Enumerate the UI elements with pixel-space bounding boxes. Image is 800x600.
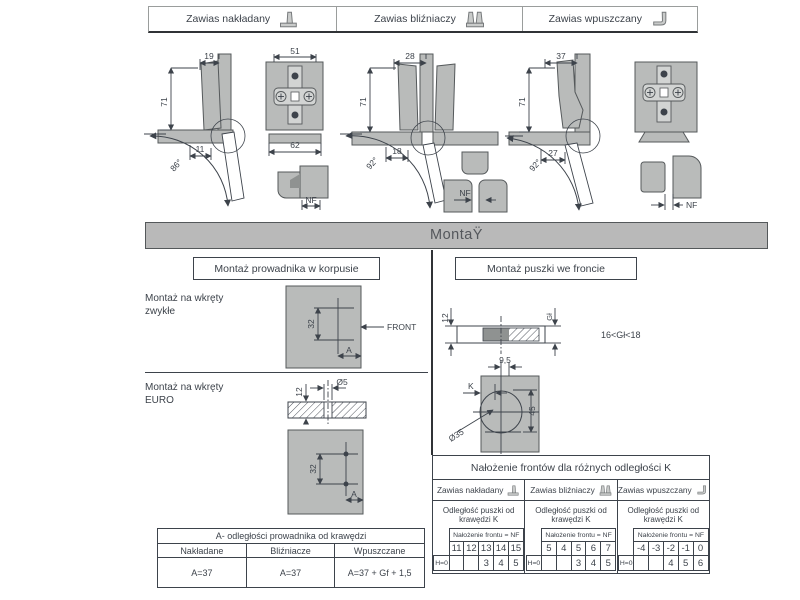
- nf-values-grid: Nałożenie frontu = NF 11 12 13 14 15 H=0…: [433, 528, 523, 571]
- k-cell: 12: [464, 542, 479, 556]
- angle-label: 92°: [364, 155, 380, 171]
- k-cell: 7: [601, 542, 616, 556]
- dim-12: 12: [440, 313, 450, 323]
- hinge-arm-left: [398, 64, 418, 130]
- cabinet-panel-right: [433, 132, 498, 145]
- nf-cell: 4: [494, 556, 509, 571]
- nf-label: NF: [686, 200, 697, 210]
- twin-hinge-diagram: 92° 28 71 18 NF: [338, 48, 513, 218]
- dim-62: 62: [290, 140, 300, 150]
- detail-right-door: [479, 180, 507, 212]
- dim-12: 12: [294, 387, 304, 397]
- detail-panel: [300, 166, 328, 198]
- tab-label: Zawias nakładany: [186, 13, 270, 25]
- detail-door: [641, 162, 665, 192]
- dim-32: 32: [308, 464, 318, 474]
- dim-diameter-35: Ø35: [447, 426, 466, 443]
- overlay-hinge-icon: [507, 485, 520, 496]
- opening-arc: [150, 136, 228, 206]
- k-cell: -2: [663, 542, 678, 556]
- col-header: Bliźniacze: [247, 544, 336, 558]
- overlay-hinge-diagram: 86° 19 71 11 51 62 NF: [138, 48, 333, 218]
- depth-range: 16<Gł<18: [601, 330, 641, 340]
- k-cell: -3: [649, 542, 664, 556]
- nf-cell: 6: [693, 556, 708, 571]
- k-cell: -1: [678, 542, 693, 556]
- k-cell: 6: [586, 542, 601, 556]
- dim-45: 45: [527, 406, 537, 416]
- tab-zawias-wpuszczany: Zawias wpuszczany: [523, 7, 697, 31]
- distance-subtitle: Odległość puszki od krawędzi K: [433, 501, 524, 528]
- column-overlay: Zawias nakładany Odległość puszki od kra…: [433, 480, 525, 573]
- panel-face: [288, 430, 363, 514]
- dim-37: 37: [556, 51, 566, 61]
- nf-cell: 4: [586, 556, 601, 571]
- nf-cell: [649, 556, 664, 571]
- front-overlay-table: Nałożenie frontów dla różnych odległości…: [432, 455, 710, 574]
- nf-cell: 5: [508, 556, 523, 571]
- nf-header: Nałożenie frontu = NF: [541, 529, 615, 542]
- value-cell: A=37 + Gf + 1,5: [335, 558, 424, 587]
- guide-euro-section-drawing: 12 Ø5: [258, 374, 428, 424]
- distance-subtitle: Odległość puszki od krawędzi K: [525, 501, 616, 528]
- dim-71: 71: [159, 97, 169, 107]
- label-euro-screws: Montaż na wkręty EURO: [145, 381, 247, 407]
- k-cell: 13: [479, 542, 494, 556]
- nf-label: NF: [305, 195, 316, 205]
- detail-top-door: [462, 152, 488, 174]
- dim-11: 11: [196, 144, 205, 154]
- nf-cell: 5: [678, 556, 693, 571]
- guide-distance-table: A- odległości prowadnika od krawędzi Nak…: [157, 528, 425, 588]
- opening-arc: [346, 136, 430, 208]
- catalog-page: Zawias nakładany Zawias bliźniaczy Zawia…: [0, 0, 800, 600]
- column-twin: Zawias bliźniaczy Odległość puszki od kr…: [525, 480, 617, 573]
- nf-header: Nałożenie frontu = NF: [634, 529, 708, 542]
- dim-a: A: [351, 489, 357, 499]
- nf-cell: [556, 556, 571, 571]
- inset-hinge-icon: [651, 11, 671, 28]
- dim-71: 71: [358, 97, 368, 107]
- nf-values-grid: Nałożenie frontu = NF 5 4 5 6 7 H=0 3: [526, 528, 616, 571]
- dim-51: 51: [290, 46, 300, 56]
- distance-subtitle: Odległość puszki od krawędzi K: [618, 501, 709, 528]
- center-panel: [420, 54, 433, 132]
- tab-label: Zawias bliźniaczy: [374, 13, 456, 25]
- hinge-label: Zawias nakładany: [437, 485, 503, 495]
- h-label: H=0: [434, 556, 449, 571]
- k-cell: 4: [556, 542, 571, 556]
- hinge-arm: [201, 61, 221, 130]
- nf-label: NF: [459, 188, 470, 198]
- cabinet-panel: [509, 132, 590, 145]
- table-title: Nałożenie frontów dla różnych odległości…: [433, 456, 709, 480]
- section-title-guide: Montaż prowadnika w korpusie: [193, 257, 380, 280]
- label-normal-screws: Montaż na wkręty zwykłe: [145, 292, 247, 318]
- cup-face-drawing: 9,5 K 45 Ø35: [443, 356, 618, 456]
- tab-zawias-blizniaczy: Zawias bliźniaczy: [337, 7, 522, 31]
- section-title-cup: Montaż puszki we froncie: [455, 257, 637, 280]
- guide-euro-face-drawing: 32 A: [258, 426, 428, 522]
- table-title: A- odległości prowadnika od krawędzi: [158, 529, 424, 544]
- k-cell: 14: [494, 542, 509, 556]
- nf-cell: 3: [571, 556, 586, 571]
- dim-18: 18: [392, 146, 402, 156]
- h-label: H=0: [619, 556, 634, 571]
- nf-cell: 4: [663, 556, 678, 571]
- inset-hinge-diagram: 92° 37 71 27 NF: [505, 48, 705, 218]
- nf-cell: [449, 556, 464, 571]
- hinge-type-header: Zawias nakładany Zawias bliźniaczy Zawia…: [148, 6, 698, 33]
- value-cell: A=37: [158, 558, 247, 587]
- dim-diameter-5: Ø5: [336, 377, 348, 387]
- dim-19: 19: [204, 51, 214, 61]
- nf-cell: 5: [601, 556, 616, 571]
- nf-values-grid: Nałożenie frontu = NF -4 -3 -2 -1 0 H=0 …: [618, 528, 708, 571]
- k-cell: 5: [541, 542, 556, 556]
- dim-32: 32: [306, 319, 316, 329]
- montaz-section-bar: MontaŸ: [145, 222, 768, 249]
- hinge-header: Zawias bliźniaczy: [525, 480, 616, 501]
- table-header-row: Nakładane Bliźniacze Wpuszczane: [158, 544, 424, 558]
- cup-section-drawing: 12 Gł 16<Gł<18: [443, 296, 698, 358]
- front-label: FRONT: [387, 322, 416, 332]
- nf-header: Nałożenie frontu = NF: [449, 529, 523, 542]
- col-header: Wpuszczane: [335, 544, 424, 558]
- twin-hinge-icon: [599, 485, 612, 496]
- nf-cell: [464, 556, 479, 571]
- dim-71: 71: [517, 97, 527, 107]
- nf-cell: 3: [479, 556, 494, 571]
- value-cell: A=37: [247, 558, 336, 587]
- guide-normal-drawing: 32 A FRONT: [256, 284, 428, 374]
- col-header: Nakładane: [158, 544, 247, 558]
- dim-27: 27: [548, 148, 558, 158]
- detail-panel: [673, 156, 701, 198]
- hinge-arm-right: [435, 64, 455, 130]
- tab-zawias-nakladany: Zawias nakładany: [149, 7, 337, 31]
- k-cell: -4: [634, 542, 649, 556]
- dim-k: K: [468, 381, 474, 391]
- dim-28: 28: [405, 51, 415, 61]
- nf-cell: [634, 556, 649, 571]
- tab-label: Zawias wpuszczany: [549, 13, 642, 25]
- k-cell: 15: [508, 542, 523, 556]
- table-value-row: A=37 A=37 A=37 + Gf + 1,5: [158, 558, 424, 587]
- hinge-header: Zawias nakładany: [433, 480, 524, 501]
- cabinet-panel: [158, 130, 233, 143]
- k-cell: 0: [693, 542, 708, 556]
- dim-a: A: [346, 345, 352, 355]
- hinge-label: Zawias wpuszczany: [618, 485, 692, 495]
- k-cell: 11: [449, 542, 464, 556]
- k-cell: 5: [571, 542, 586, 556]
- hinge-label: Zawias bliźniaczy: [530, 485, 595, 495]
- twin-hinge-icon: [465, 11, 485, 28]
- dim-9-5: 9,5: [499, 355, 511, 365]
- inset-hinge-icon: [696, 485, 709, 496]
- depth-label: Gł: [545, 313, 554, 321]
- angle-label: 86°: [168, 157, 184, 173]
- nf-cell: [541, 556, 556, 571]
- open-door: [423, 143, 446, 203]
- column-inset: Zawias wpuszczany Odległość puszki od kr…: [618, 480, 709, 573]
- overlay-hinge-icon: [279, 11, 299, 28]
- column-divider: [431, 250, 433, 455]
- hinge-header: Zawias wpuszczany: [618, 480, 709, 501]
- h-label: H=0: [526, 556, 541, 571]
